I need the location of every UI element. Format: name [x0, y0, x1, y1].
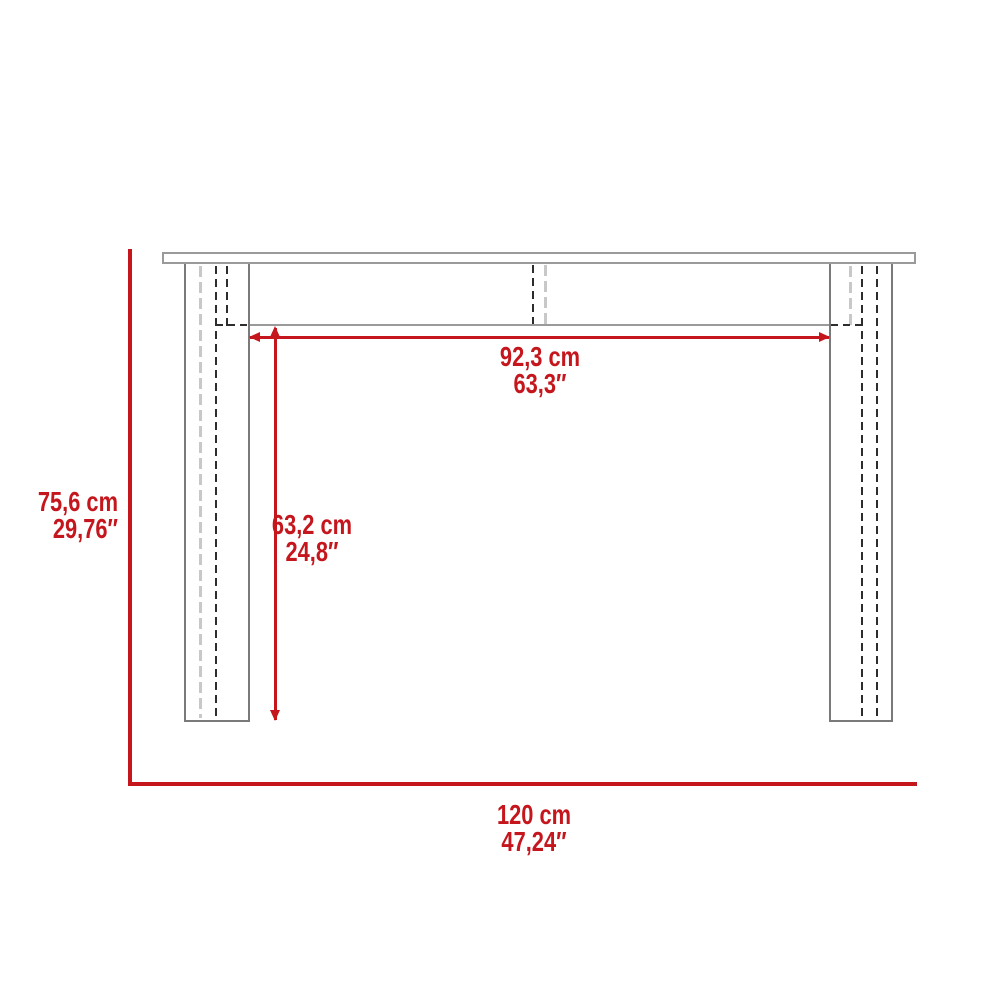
inner-width-imperial: 63,3″	[462, 370, 618, 397]
overall-width-metric: 120 cm	[456, 801, 612, 828]
left-leg-hidden-line-light	[199, 266, 202, 718]
overall-height-extent-line	[128, 249, 132, 786]
overall-width-extent-line	[128, 782, 917, 786]
overall-height-label: 75,6 cm 29,76″	[26, 488, 118, 542]
left-leg-hidden-line-upper	[226, 266, 228, 326]
dimension-diagram: 92,3 cm 63,3″ 63,2 cm 24,8″ 75,6 cm 29,7…	[0, 0, 1000, 1000]
inner-width-label: 92,3 cm 63,3″	[462, 343, 618, 397]
overall-width-imperial: 47,24″	[456, 828, 612, 855]
leg-height-metric: 63,2 cm	[265, 511, 359, 538]
arrow-up-icon	[270, 326, 280, 337]
left-leg-outline	[184, 264, 250, 722]
center-support-hidden-line-light	[544, 265, 547, 326]
overall-height-imperial: 29,76″	[26, 515, 118, 542]
inner-width-dimension-line	[250, 336, 829, 339]
apron-bottom-edge	[250, 324, 829, 326]
arrow-down-icon	[270, 710, 280, 721]
right-leg-hidden-line-light	[849, 266, 852, 326]
right-leg-hidden-line-2	[876, 266, 878, 718]
left-leg-hidden-line	[215, 266, 217, 718]
inner-width-metric: 92,3 cm	[462, 343, 618, 370]
right-leg-hidden-line	[861, 266, 863, 718]
center-support-hidden-line	[532, 265, 534, 326]
overall-height-metric: 75,6 cm	[26, 488, 118, 515]
arrow-right-icon	[819, 332, 830, 342]
arrow-left-icon	[249, 332, 260, 342]
leg-height-label: 63,2 cm 24,8″	[265, 511, 359, 565]
tabletop-outline	[162, 252, 916, 264]
leg-height-imperial: 24,8″	[265, 538, 359, 565]
overall-width-label: 120 cm 47,24″	[456, 801, 612, 855]
apron-hidden-edge-right	[831, 324, 862, 326]
apron-hidden-edge-left	[216, 324, 250, 326]
